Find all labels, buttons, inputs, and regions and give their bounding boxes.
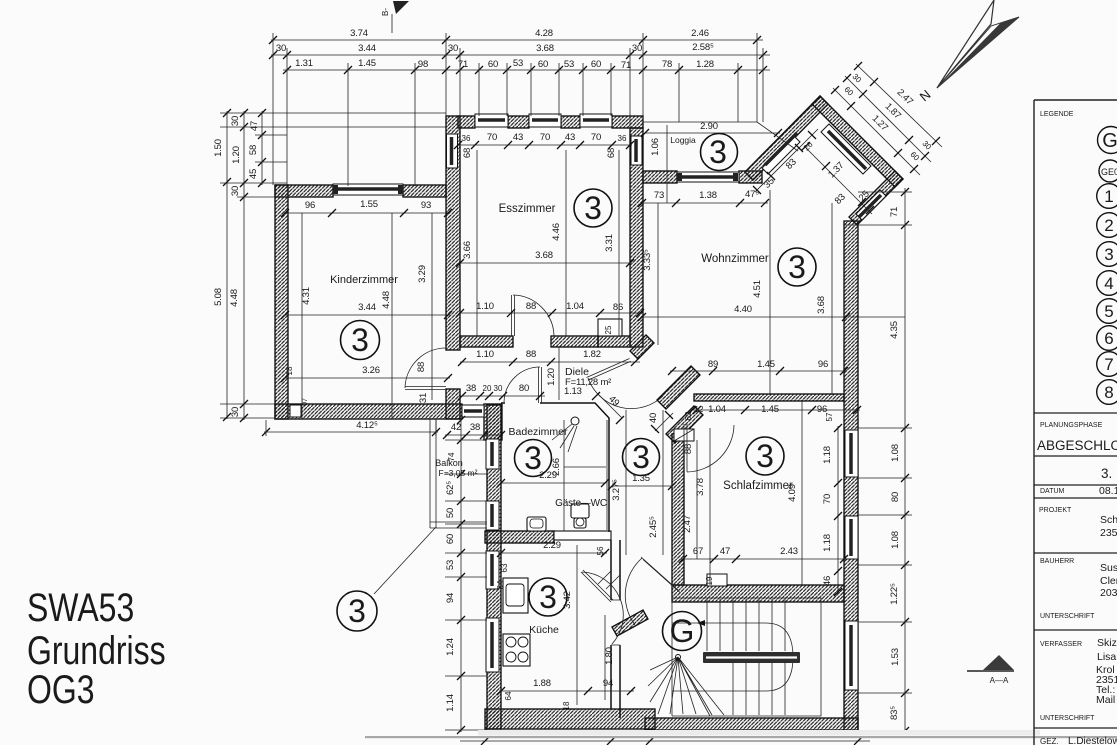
svg-text:67: 67: [693, 546, 703, 557]
svg-text:57: 57: [825, 412, 834, 421]
svg-text:1.10: 1.10: [476, 301, 494, 312]
svg-text:73: 73: [654, 190, 664, 201]
svg-text:60: 60: [445, 534, 456, 544]
svg-text:3.: 3.: [1101, 466, 1112, 481]
svg-text:71: 71: [458, 59, 468, 70]
svg-text:BAUHERR: BAUHERR: [1040, 558, 1074, 565]
svg-text:30: 30: [448, 43, 458, 54]
svg-text:Lisa: Lisa: [1097, 651, 1116, 663]
svg-text:53: 53: [564, 59, 574, 70]
svg-text:SWA53: SWA53: [27, 585, 134, 630]
svg-text:Mail: Mail: [1096, 694, 1115, 706]
svg-text:3: 3: [1104, 245, 1113, 264]
svg-text:3.74: 3.74: [350, 28, 368, 39]
svg-text:18: 18: [285, 366, 294, 375]
svg-text:62: 62: [684, 411, 693, 420]
svg-text:3.44: 3.44: [358, 43, 376, 54]
svg-text:71: 71: [621, 60, 631, 71]
svg-text:1.04: 1.04: [566, 301, 584, 312]
svg-text:50: 50: [445, 508, 456, 518]
svg-text:07: 07: [302, 398, 309, 406]
svg-text:3.26: 3.26: [362, 365, 380, 376]
svg-text:71: 71: [889, 207, 900, 217]
svg-text:88: 88: [416, 362, 427, 372]
svg-text:2.46: 2.46: [691, 28, 709, 39]
svg-text:Gäste—WC: Gäste—WC: [555, 498, 607, 509]
svg-text:53: 53: [513, 58, 523, 69]
svg-text:4.12⁵: 4.12⁵: [356, 420, 378, 431]
svg-text:40: 40: [648, 413, 659, 423]
svg-text:84: 84: [496, 580, 505, 589]
svg-text:3.66: 3.66: [462, 241, 473, 259]
svg-text:47: 47: [249, 121, 260, 131]
svg-text:78: 78: [662, 59, 672, 70]
svg-text:3.44: 3.44: [358, 302, 376, 313]
svg-text:47⁵: 47⁵: [745, 189, 759, 200]
svg-text:94: 94: [603, 678, 613, 689]
svg-text:88: 88: [526, 301, 536, 312]
svg-text:38: 38: [470, 422, 480, 433]
svg-text:46: 46: [822, 576, 833, 586]
svg-text:G: G: [670, 613, 695, 649]
svg-text:A—A: A—A: [990, 676, 1009, 685]
svg-text:88: 88: [526, 349, 536, 360]
svg-text:PLANUNGSPHASE: PLANUNGSPHASE: [1040, 422, 1103, 429]
svg-text:70: 70: [591, 132, 601, 143]
svg-text:56: 56: [596, 546, 605, 555]
svg-text:1.45: 1.45: [757, 359, 775, 370]
svg-text:93: 93: [421, 200, 431, 211]
svg-text:1.08: 1.08: [890, 444, 901, 462]
svg-text:GEZ.: GEZ.: [1040, 737, 1059, 745]
svg-text:83⁵: 83⁵: [889, 706, 900, 720]
svg-text:Badezimmer: Badezimmer: [509, 426, 568, 438]
svg-text:DATUM: DATUM: [1040, 488, 1065, 495]
svg-text:89: 89: [708, 359, 718, 370]
svg-text:Esszimmer: Esszimmer: [499, 203, 556, 215]
svg-text:3.68: 3.68: [536, 43, 554, 54]
svg-text:3: 3: [788, 249, 806, 285]
svg-text:30: 30: [276, 43, 286, 54]
svg-text:3.33⁵: 3.33⁵: [642, 249, 653, 271]
svg-text:19: 19: [705, 576, 714, 585]
svg-text:UNTERSCHRIFT: UNTERSCHRIFT: [1040, 613, 1095, 620]
svg-text:25: 25: [604, 325, 613, 334]
svg-text:1.31: 1.31: [295, 58, 313, 69]
svg-text:80: 80: [890, 492, 901, 502]
svg-text:Skiz: Skiz: [1097, 637, 1117, 649]
svg-text:4.51: 4.51: [752, 280, 763, 298]
svg-text:18: 18: [562, 701, 571, 710]
svg-text:2.29: 2.29: [543, 540, 561, 551]
svg-text:3: 3: [756, 438, 774, 474]
svg-text:2.45⁵: 2.45⁵: [648, 516, 659, 538]
svg-text:1.45: 1.45: [761, 404, 779, 415]
svg-text:96: 96: [305, 200, 315, 211]
svg-text:VERFASSER: VERFASSER: [1040, 641, 1082, 648]
svg-text:4.46: 4.46: [551, 223, 562, 241]
svg-text:5.08: 5.08: [213, 288, 224, 306]
svg-text:88: 88: [683, 444, 694, 454]
svg-text:2.58⁵: 2.58⁵: [692, 42, 714, 53]
svg-text:GE0: GE0: [1101, 167, 1117, 177]
svg-text:80: 80: [519, 383, 529, 394]
svg-text:1.20: 1.20: [546, 368, 557, 386]
svg-text:1.88: 1.88: [533, 678, 551, 689]
svg-text:70: 70: [822, 494, 833, 504]
svg-text:3: 3: [351, 322, 369, 358]
svg-text:3: 3: [709, 134, 727, 170]
svg-text:4.35: 4.35: [889, 321, 900, 339]
svg-text:Schlafzimmer: Schlafzimmer: [723, 480, 793, 492]
svg-text:63: 63: [500, 563, 509, 572]
svg-text:L.Diestelow: L.Diestelow: [1068, 736, 1117, 745]
svg-text:4: 4: [1104, 274, 1113, 293]
svg-text:2031: 2031: [1100, 587, 1117, 599]
svg-text:LEGENDE: LEGENDE: [1040, 111, 1074, 118]
svg-text:1.13: 1.13: [564, 386, 582, 397]
svg-text:58: 58: [248, 145, 259, 155]
svg-text:1.10: 1.10: [476, 349, 494, 360]
svg-text:3: 3: [584, 190, 602, 226]
svg-text:6: 6: [1104, 329, 1113, 348]
svg-text:20: 20: [483, 384, 492, 393]
svg-text:G: G: [1102, 130, 1117, 152]
svg-text:60: 60: [538, 59, 548, 70]
svg-text:3: 3: [539, 579, 557, 615]
svg-text:36: 36: [462, 134, 471, 143]
svg-text:62⁵: 62⁵: [445, 481, 456, 495]
svg-text:1.06: 1.06: [650, 138, 661, 156]
svg-text:1.50: 1.50: [213, 139, 224, 157]
svg-text:PROJEKT: PROJEKT: [1039, 507, 1072, 514]
svg-text:1.80: 1.80: [604, 647, 615, 665]
svg-text:3.78: 3.78: [695, 478, 706, 496]
svg-text:4.48: 4.48: [381, 291, 392, 309]
svg-text:45: 45: [248, 169, 259, 179]
svg-text:F=3,05 m²: F=3,05 m²: [439, 468, 478, 478]
svg-text:74: 74: [447, 452, 456, 461]
svg-text:5: 5: [1104, 302, 1113, 321]
svg-text:86: 86: [613, 302, 623, 313]
svg-text:1.08: 1.08: [890, 531, 901, 549]
svg-text:31: 31: [418, 393, 429, 403]
svg-text:1.22⁵: 1.22⁵: [889, 583, 900, 605]
svg-text:1.28: 1.28: [696, 59, 714, 70]
svg-text:2.66: 2.66: [551, 458, 562, 476]
svg-text:64: 64: [504, 691, 513, 700]
svg-text:3.31: 3.31: [604, 234, 615, 252]
svg-text:4.09: 4.09: [787, 484, 798, 502]
svg-text:Wohnzimmer: Wohnzimmer: [701, 253, 769, 265]
svg-text:Kinderzimmer: Kinderzimmer: [330, 274, 398, 286]
svg-text:1.53: 1.53: [890, 648, 901, 666]
svg-text:1.18: 1.18: [822, 534, 833, 552]
svg-text:1.82: 1.82: [583, 349, 601, 360]
svg-text:OG3: OG3: [27, 667, 95, 712]
svg-text:Clem: Clem: [1100, 575, 1117, 587]
svg-text:1.55: 1.55: [360, 199, 378, 210]
svg-text:1.18: 1.18: [822, 446, 833, 464]
svg-text:1: 1: [1104, 187, 1113, 206]
svg-text:3.29: 3.29: [417, 265, 428, 283]
svg-text:Suse: Suse: [1100, 562, 1117, 574]
svg-text:4.48: 4.48: [229, 289, 240, 307]
svg-text:Schw: Schw: [1100, 514, 1117, 526]
svg-text:30: 30: [494, 384, 503, 393]
svg-text:3.68: 3.68: [535, 250, 553, 261]
svg-text:98: 98: [418, 59, 428, 70]
svg-text:UNTERSCHRIFT: UNTERSCHRIFT: [1040, 715, 1095, 722]
svg-text:60: 60: [488, 59, 498, 70]
svg-text:1.45: 1.45: [358, 58, 376, 69]
svg-text:30: 30: [230, 116, 241, 126]
svg-text:2.90: 2.90: [700, 121, 718, 132]
svg-text:3.68: 3.68: [816, 296, 827, 314]
svg-text:68: 68: [462, 148, 473, 158]
svg-text:38: 38: [466, 383, 476, 394]
svg-text:1.38: 1.38: [699, 190, 717, 201]
svg-text:96: 96: [818, 359, 828, 370]
svg-text:3.27⁵: 3.27⁵: [611, 479, 622, 501]
svg-text:68: 68: [606, 148, 617, 158]
svg-text:3: 3: [632, 439, 650, 475]
svg-text:2351: 2351: [1100, 527, 1117, 539]
svg-text:2.47: 2.47: [682, 515, 693, 533]
svg-text:94: 94: [445, 593, 456, 603]
svg-text:1.20: 1.20: [231, 146, 242, 164]
svg-text:30: 30: [230, 407, 241, 417]
svg-text:43: 43: [565, 132, 575, 143]
svg-text:1.24: 1.24: [445, 638, 456, 656]
svg-text:70: 70: [540, 132, 550, 143]
svg-text:30: 30: [632, 43, 642, 54]
svg-text:1.14: 1.14: [445, 694, 456, 712]
svg-text:30: 30: [230, 186, 241, 196]
svg-text:4.28: 4.28: [535, 28, 553, 39]
svg-text:2.43: 2.43: [780, 546, 798, 557]
svg-text:7: 7: [1104, 355, 1113, 374]
svg-text:70: 70: [487, 132, 497, 143]
svg-text:42: 42: [451, 422, 461, 433]
svg-text:43: 43: [513, 132, 523, 143]
svg-text:4.31: 4.31: [301, 287, 312, 305]
svg-text:ABGESCHLOSS: ABGESCHLOSS: [1037, 438, 1117, 453]
svg-text:3: 3: [348, 593, 366, 629]
svg-text:12: 12: [695, 405, 704, 414]
svg-text:1.04: 1.04: [708, 404, 726, 415]
svg-text:Küche: Küche: [529, 624, 559, 636]
svg-text:60: 60: [591, 59, 601, 70]
svg-text:4.40: 4.40: [734, 304, 752, 315]
svg-text:47: 47: [720, 546, 730, 557]
svg-text:3: 3: [524, 440, 542, 476]
svg-text:8: 8: [1104, 383, 1113, 402]
svg-text:Loggia: Loggia: [670, 135, 696, 145]
svg-text:B-: B-: [381, 8, 390, 16]
svg-text:53: 53: [445, 560, 456, 570]
svg-text:36: 36: [618, 134, 627, 143]
svg-text:08.1: 08.1: [1099, 485, 1117, 497]
svg-text:2: 2: [1104, 216, 1113, 235]
